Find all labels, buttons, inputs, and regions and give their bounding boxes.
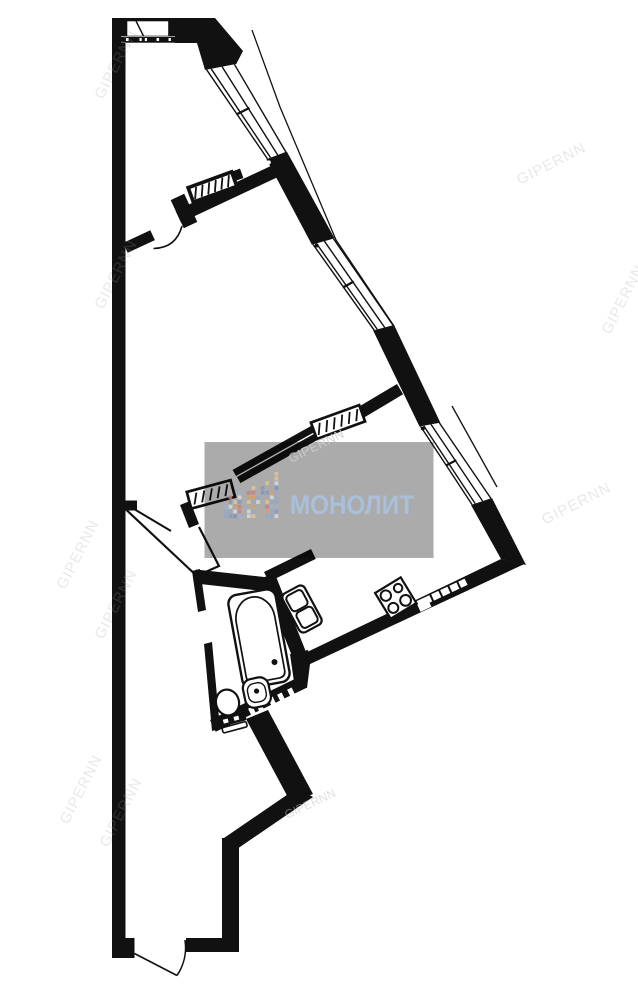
svg-text:МОНОЛИТ: МОНОЛИТ <box>290 490 414 520</box>
